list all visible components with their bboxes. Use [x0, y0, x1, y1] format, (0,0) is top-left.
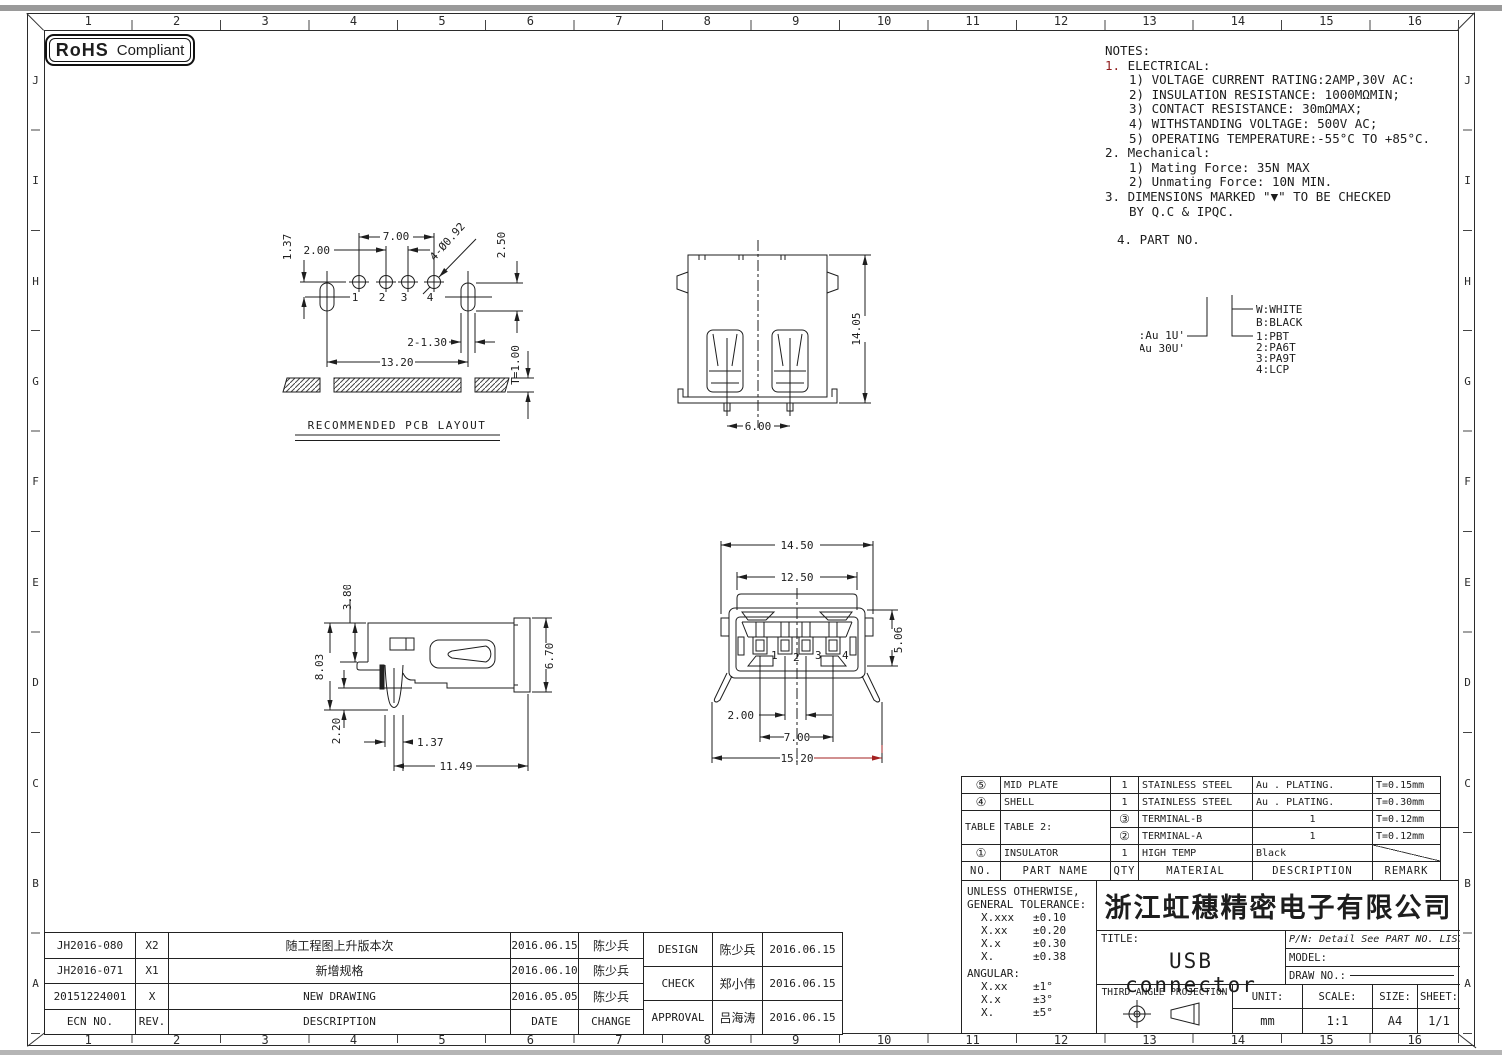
note-line: 4) WITHSTANDING VOLTAGE: 500V AC;	[1105, 117, 1430, 132]
drawing-sheet: 12345678910111213141516 1234567891011121…	[0, 0, 1502, 1059]
note-number: 3.	[1105, 189, 1120, 204]
rev-date: 2016.06.15	[511, 933, 579, 959]
rev-rev: X2	[136, 933, 169, 959]
tolerance-row: X.x±0.30	[967, 937, 1096, 950]
part-no: ⑤	[962, 777, 1001, 794]
pn-row: P/N: Detail See PART NO. LIST	[1286, 931, 1460, 949]
front-pin-label: 1	[771, 649, 778, 662]
drawno-row: DRAW NO.:	[1286, 967, 1460, 985]
pn-text: P/N: Detail See PART NO. LIST	[1289, 934, 1460, 945]
tol-key: X.xx	[981, 924, 1033, 937]
note-number: 1.	[1105, 58, 1120, 73]
rev-header-rev: REV.	[136, 1010, 169, 1036]
part-no: ①	[962, 845, 1001, 862]
sheet-label: SHEET:	[1420, 991, 1458, 1003]
rev-date: 2016.05.05	[511, 984, 579, 1010]
title-label: TITLE:	[1097, 931, 1285, 945]
note-number: 2.	[1105, 145, 1120, 160]
rev-header-desc: DESCRIPTION	[169, 1010, 511, 1036]
note-partno: 4. PART NO.	[1105, 233, 1430, 248]
note-line: 1) VOLTAGE CURRENT RATING:2AMP,30V AC:	[1105, 73, 1430, 88]
color-code-white: W:WHITE	[1256, 303, 1302, 316]
dim-1_37: 1.37	[281, 234, 294, 261]
grid-ticks-right	[1463, 30, 1472, 1034]
dim-13_20: 13.20	[380, 356, 413, 369]
unit-label-cell: UNIT:	[1233, 985, 1303, 1009]
rear-view-drawing: 14.05 6.00	[655, 238, 890, 438]
dim-2_00: 2.00	[304, 244, 331, 257]
side-view-drawing: 3.80 8.03 2.20 1.37 11.49 6.70	[300, 585, 565, 800]
parts-header-material: MATERIAL	[1139, 862, 1253, 881]
pcb-pin-label: 1	[352, 291, 359, 304]
tol-key: X.x	[981, 993, 1033, 1006]
third-angle-symbol	[1105, 998, 1225, 1030]
tolerance-box: UNLESS OTHERWISE, GENERAL TOLERANCE: X.x…	[962, 881, 1097, 1033]
model-row: MODEL:	[1286, 949, 1460, 967]
part-desc-merged: TABLE 2:	[1001, 811, 1111, 845]
part-desc: Au . PLATING.	[1253, 794, 1373, 811]
notes-block: NOTES: 1. ELECTRICAL: 1) VOLTAGE CURRENT…	[1105, 44, 1430, 248]
part-qty: 1	[1111, 794, 1139, 811]
parts-table: ⑤ MID PLATE 1 STAINLESS STEEL Au . PLATI…	[961, 776, 1441, 881]
dim-thickness: T=1.00	[509, 345, 522, 385]
part-desc: Au . PLATING.	[1253, 777, 1373, 794]
title-box: TITLE: USB connector	[1097, 931, 1286, 985]
note-line: 2) Unmating Force: 10N MIN.	[1105, 175, 1430, 190]
drawno-line	[1350, 975, 1454, 976]
dim-holes: 4-Ø0.92	[427, 220, 468, 263]
model-label: MODEL:	[1289, 952, 1327, 964]
rev-change: 陈少兵	[579, 959, 644, 985]
note-line: 5) OPERATING TEMPERATURE:-55°C TO +85°C.	[1105, 132, 1430, 147]
tol-val: ±0.38	[1033, 950, 1066, 963]
part-no: ③	[1111, 811, 1139, 828]
tol-val: ±5°	[1033, 1006, 1053, 1019]
part-material: HIGH TEMP	[1139, 845, 1253, 862]
size-value-cell: A4	[1373, 1009, 1418, 1033]
rev-header-ecn: ECN NO.	[45, 1010, 136, 1036]
scale-label-cell: SCALE:	[1303, 985, 1373, 1009]
dim-15_20: 15.20	[780, 752, 813, 765]
note-line: 1) Mating Force: 35N MAX	[1105, 161, 1430, 176]
tolerance-line2: GENERAL TOLERANCE:	[967, 898, 1096, 911]
parts-header-name: PART NAME	[1001, 862, 1111, 881]
tolerance-row: X.xx±0.20	[967, 924, 1096, 937]
tolerance-line1: UNLESS OTHERWISE,	[967, 885, 1096, 898]
dim-7_00-front: 7.00	[784, 731, 811, 744]
part-desc: Black	[1253, 845, 1373, 862]
approval-name: 郑小伟	[713, 967, 763, 1001]
dim-7_00: 7.00	[383, 230, 410, 243]
approval-date: 2016.06.15	[763, 1001, 843, 1035]
size-value: A4	[1388, 1014, 1402, 1028]
sheet-label-cell: SHEET:	[1418, 985, 1460, 1009]
front-pin-label: 3	[815, 649, 822, 662]
checked-dim-mark	[814, 745, 882, 758]
dim-2-1_30: 2-1.30	[407, 336, 447, 349]
grid-ticks-bottom	[44, 1034, 1459, 1043]
dim-2_50: 2.50	[495, 232, 508, 259]
note-mechanical: 2. Mechanical:	[1105, 146, 1430, 161]
rev-header-change: CHANGE	[579, 1010, 644, 1036]
dim-8_03: 8.03	[313, 654, 326, 681]
part-remark: T=0.12mm	[1373, 828, 1441, 845]
rohs-bold-text: RoHS	[56, 40, 109, 61]
part-remark-slash	[1373, 845, 1441, 862]
approval-name: 吕海涛	[713, 1001, 763, 1035]
angular-row: X.xx±1°	[967, 980, 1096, 993]
tol-val: ±1°	[1033, 980, 1053, 993]
rohs-badge: RoHS Compliant	[45, 34, 195, 66]
part-name: TERMINAL-A	[1139, 828, 1253, 845]
scan-shadow-bottom	[0, 1050, 1502, 1055]
dim-14_05: 14.05	[850, 312, 863, 345]
sheet-value: 1/1	[1428, 1014, 1450, 1028]
scale-label: SCALE:	[1319, 991, 1357, 1003]
projection-box: THIRD ANGLE PROJECTION	[1097, 985, 1233, 1033]
revision-table: JH2016-080 X2 随工程图上升版本次 2016.06.15 陈少兵 J…	[44, 932, 843, 1035]
title-block: UNLESS OTHERWISE, GENERAL TOLERANCE: X.x…	[961, 880, 1459, 1034]
material-code-4: 4:LCP	[1256, 363, 1289, 376]
part-name: MID PLATE	[1001, 777, 1111, 794]
revision-rows: JH2016-080 X2 随工程图上升版本次 2016.06.15 陈少兵 J…	[45, 933, 644, 1035]
dim-2_00-front: 2.00	[728, 709, 755, 722]
front-view-drawing: 1 2 3 4 14.50 12.50 5.06 2.00 7.00 15.20	[690, 530, 922, 780]
part-qty: 1	[1111, 845, 1139, 862]
scale-value-cell: 1:1	[1303, 1009, 1373, 1033]
rev-ecn: JH2016-080	[45, 933, 136, 959]
dim-6_70: 6.70	[543, 643, 556, 670]
plating-code-1: 1:Au 1U'	[1140, 329, 1185, 342]
part-name: INSULATOR	[1001, 845, 1111, 862]
pcb-layout-drawing: 1 2 3 4 7.00 2.00 1.37 2.50 4-Ø0.92 2-1.…	[280, 213, 570, 463]
grid-ticks-left	[31, 30, 40, 1034]
part-remark: T=0.30mm	[1373, 794, 1441, 811]
part-qty: 1	[1253, 828, 1373, 845]
dim-1_37: 1.37	[417, 736, 444, 749]
note-electrical: 1. ELECTRICAL:	[1105, 59, 1430, 74]
rev-rev: X1	[136, 959, 169, 985]
rev-change: 陈少兵	[579, 984, 644, 1010]
rev-ecn: JH2016-071	[45, 959, 136, 985]
note-text: ELECTRICAL:	[1128, 58, 1211, 73]
note-text: PART NO.	[1140, 232, 1200, 247]
tol-val: ±0.10	[1033, 911, 1066, 924]
part-material-merged: TABLE 2:	[962, 811, 1001, 845]
plating-code-2: 6:Au 30U'	[1140, 342, 1185, 355]
part-name: SHELL	[1001, 794, 1111, 811]
dim-2_20: 2.20	[330, 718, 343, 745]
notes-title: NOTES:	[1105, 44, 1430, 59]
sheet-value-cell: 1/1	[1418, 1009, 1460, 1033]
rohs-regular-text: Compliant	[117, 42, 185, 59]
tol-val: ±3°	[1033, 993, 1053, 1006]
front-pin-label: 2	[793, 651, 800, 664]
dim-14_50: 14.50	[780, 539, 813, 552]
part-remark: T=0.12mm	[1373, 811, 1441, 828]
scan-shadow-top	[0, 5, 1502, 11]
angular-row: X.x±3°	[967, 993, 1096, 1006]
parts-header-desc: DESCRIPTION	[1253, 862, 1373, 881]
scale-value: 1:1	[1327, 1014, 1349, 1028]
pcb-layout-title: RECOMMENDED PCB LAYOUT	[308, 419, 487, 432]
tol-key: X.xxx	[981, 911, 1033, 924]
rev-desc: 随工程图上升版本次	[169, 933, 511, 959]
unit-label: UNIT:	[1252, 991, 1284, 1003]
rear-geometry	[677, 240, 871, 428]
angular-row: X.±5°	[967, 1006, 1096, 1019]
tol-key: X.	[981, 950, 1033, 963]
part-no: ④	[962, 794, 1001, 811]
dim-6_00: 6.00	[745, 420, 772, 433]
note-text: DIMENSIONS MARKED "▼" TO BE CHECKED	[1128, 189, 1391, 204]
tol-key: X.x	[981, 937, 1033, 950]
company-name: 浙江虹穗精密电子有限公司	[1097, 881, 1460, 931]
approval-role: DESIGN	[644, 933, 713, 967]
note-dimensions: 3. DIMENSIONS MARKED "▼" TO BE CHECKED	[1105, 190, 1430, 205]
approval-name: 陈少兵	[713, 933, 763, 967]
parts-header-qty: QTY	[1111, 862, 1139, 881]
note-line: BY Q.C & IPQC.	[1105, 205, 1430, 220]
part-remark: T=0.15mm	[1373, 777, 1441, 794]
approval-date: 2016.06.15	[763, 933, 843, 967]
part-qty: 1	[1111, 777, 1139, 794]
company-text: 浙江虹穗精密电子有限公司	[1105, 886, 1453, 925]
rev-header-date: DATE	[511, 1010, 579, 1036]
dim-3_80: 3.80	[341, 585, 354, 610]
tolerance-row: X.xxx±0.10	[967, 911, 1096, 924]
tol-val: ±0.30	[1033, 937, 1066, 950]
projection-label: THIRD ANGLE PROJECTION	[1097, 985, 1232, 998]
tol-key: X.xx	[981, 980, 1033, 993]
rev-change: 陈少兵	[579, 933, 644, 959]
note-text: Mechanical:	[1128, 145, 1211, 160]
remark-divider-tail	[1440, 827, 1459, 828]
approval-rows: DESIGN 陈少兵 2016.06.15 CHECK 郑小伟 2016.06.…	[644, 933, 843, 1035]
grid-ticks-top	[44, 20, 1459, 30]
dim-5_06: 5.06	[892, 627, 905, 654]
drawno-label: DRAW NO.:	[1289, 970, 1346, 982]
part-number-legend-diagram: 1:Au 1U' 6:Au 30U' W:WHITE B:BLACK 1:PBT…	[1140, 288, 1390, 388]
front-pin-label: 4	[842, 649, 849, 662]
dim-11_49: 11.49	[439, 760, 472, 773]
unit-value-cell: mm	[1233, 1009, 1303, 1033]
dim-12_50: 12.50	[780, 571, 813, 584]
part-qty: 1	[1253, 811, 1373, 828]
part-material: STAINLESS STEEL	[1139, 777, 1253, 794]
note-line: 2) INSULATION RESISTANCE: 1000MΩMIN;	[1105, 88, 1430, 103]
size-label: SIZE:	[1379, 991, 1411, 1003]
tol-val: ±0.20	[1033, 924, 1066, 937]
part-name: TERMINAL-B	[1139, 811, 1253, 828]
tolerance-row: X.±0.38	[967, 950, 1096, 963]
approval-date: 2016.06.15	[763, 967, 843, 1001]
rev-rev: X	[136, 984, 169, 1010]
note-line: 3) CONTACT RESISTANCE: 30mΩMAX;	[1105, 102, 1430, 117]
part-no: ②	[1111, 828, 1139, 845]
tol-key: X.	[981, 1006, 1033, 1019]
parts-header-no: NO.	[962, 862, 1001, 881]
color-code-black: B:BLACK	[1256, 316, 1303, 329]
rev-desc: 新增规格	[169, 959, 511, 985]
approval-role: APPROVAL	[644, 1001, 713, 1035]
pcb-pin-label: 2	[379, 291, 386, 304]
pcb-pin-label: 4	[427, 291, 434, 304]
part-material: STAINLESS STEEL	[1139, 794, 1253, 811]
angular-label: ANGULAR:	[967, 967, 1096, 980]
rev-date: 2016.06.10	[511, 959, 579, 985]
rev-ecn: 20151224001	[45, 984, 136, 1010]
parts-header-remark: REMARK	[1373, 862, 1441, 881]
approval-role: CHECK	[644, 967, 713, 1001]
unit-value: mm	[1260, 1014, 1274, 1028]
pcb-pin-label: 3	[401, 291, 408, 304]
size-label-cell: SIZE:	[1373, 985, 1418, 1009]
rev-desc: NEW DRAWING	[169, 984, 511, 1010]
note-number: 4.	[1117, 232, 1132, 247]
